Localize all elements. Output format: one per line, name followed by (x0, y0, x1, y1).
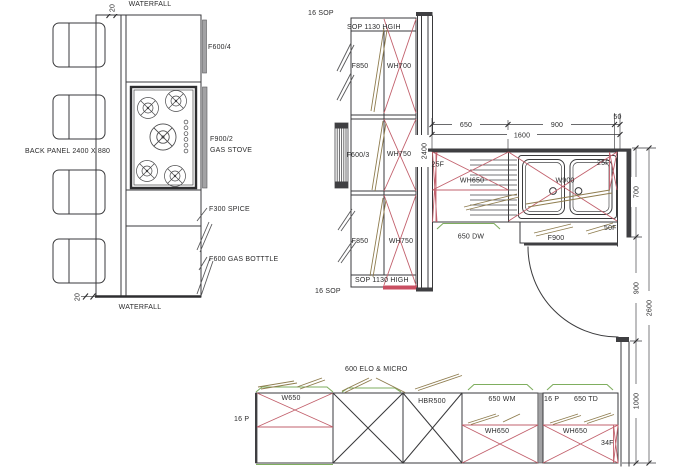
dim-1000: 1000 (634, 393, 641, 409)
label-f900: F900 (548, 235, 565, 242)
f900-door-swings (534, 223, 615, 236)
under-counter-annotations: 650 DW F900 50F (437, 222, 618, 246)
label-f850-bottom: F850 (352, 238, 369, 245)
island-outline (95, 15, 201, 297)
label-f600-gas-bottle: F600 GAS BOTTTLE (209, 256, 278, 263)
wall-right-lower (621, 342, 629, 466)
label-gas-stove: GAS STOVE (210, 147, 252, 154)
dim-50: 50 (613, 114, 621, 121)
countertop-edges (256, 385, 613, 465)
burner-icon (150, 124, 176, 150)
dim-waterfall-top: 20 (110, 4, 117, 12)
bar-stool (53, 95, 105, 139)
label-hbr500: HBR500 (418, 398, 446, 405)
burner-icon (165, 166, 186, 187)
label-wh750-bottom: WH750 (389, 238, 413, 245)
dim-waterfall-bottom: 20 (75, 293, 82, 301)
label-waterfall-top: WATERFALL (129, 1, 172, 8)
faucet-hole (575, 188, 582, 195)
dim-2400: 2400 (422, 143, 429, 159)
label-wh750-mid: WH750 (387, 151, 411, 158)
end-panel (255, 393, 257, 463)
dim-1600: 1600 (514, 133, 530, 140)
filler-strip (203, 20, 207, 73)
wall-behind-tall-units: 2400 (414, 12, 434, 292)
label-25f-right: 25F (597, 160, 610, 167)
label-50f: 50F (604, 225, 617, 232)
dim-900: 900 (551, 122, 563, 129)
gas-stove (131, 87, 196, 188)
waterfall-dim-top: 20 (104, 2, 119, 18)
kitchen-plan-page: 20 20 (0, 0, 700, 467)
label-wh650-counter: WH650 (460, 178, 484, 185)
label-16p-mid: 16 P (544, 396, 559, 403)
waterfall-dim-bottom: 20 (75, 293, 97, 301)
label-650wm: 650 WM (488, 396, 515, 403)
label-w900: W900 (555, 178, 574, 185)
label-16sop-top: 16 SOP (308, 10, 334, 17)
dim-650: 650 (460, 122, 472, 129)
tall-unit-column: 2400 16 SOP SOP 1130 HGIH F850 WH700 F60… (308, 10, 434, 295)
label-25f-left: 25F (432, 162, 445, 169)
filler-strip (203, 87, 208, 188)
bar-stool (53, 170, 105, 214)
sink-counter: 25F WH650 W900 25F (432, 152, 618, 222)
label-f600-4: F600/4 (208, 44, 231, 51)
wall-top (428, 149, 631, 152)
stove-knobs (184, 120, 188, 153)
divider-panel (538, 393, 543, 463)
wall-right-upper (627, 149, 632, 238)
burner-icon (138, 98, 159, 119)
base-cabinet-row: 600 ELO & MICRO 16 P W650 HBR500 650 WM … (234, 366, 618, 465)
label-back-panel: BACK PANEL 2400 X 880 (25, 148, 110, 155)
label-16p-left: 16 P (234, 416, 249, 423)
dishwasher-bracket (437, 224, 500, 230)
door-swing-arc (528, 247, 618, 337)
dim-900-v: 900 (634, 282, 641, 294)
dim-700: 700 (634, 186, 641, 198)
dim-2600: 2600 (647, 300, 654, 316)
cabinet-w650 (256, 393, 333, 463)
kitchen-plan-drawing: 20 20 (0, 0, 700, 467)
burner-icon (166, 91, 187, 112)
bar-stool (53, 239, 105, 283)
label-sop1130-top: SOP 1130 HGIH (347, 24, 401, 31)
label-wh650-left: WH650 (485, 428, 509, 435)
label-f850-top: F850 (352, 63, 369, 70)
label-650-dw: 650 DW (458, 234, 485, 241)
bar-stool (53, 23, 105, 67)
label-650td: 650 TD (574, 396, 598, 403)
label-16sop-bottom: 16 SOP (315, 288, 341, 295)
label-elo-micro: 600 ELO & MICRO (345, 366, 408, 373)
label-f300-spice: F300 SPICE (209, 206, 250, 213)
door-jamb (616, 337, 629, 342)
drainboard-ribs (470, 160, 517, 215)
label-f600-3: F600/3 (347, 152, 370, 159)
label-waterfall-bottom: WATERFALL (119, 304, 162, 311)
label-f900-2: F900/2 (210, 136, 233, 143)
label-wh700: WH700 (387, 63, 411, 70)
burner-icon (137, 161, 158, 182)
island-unit: 20 20 (25, 1, 278, 311)
label-34f: 34F (601, 440, 614, 447)
island-door-swings (197, 208, 213, 296)
label-sop1130-bottom: SOP 1130 HIGH (355, 277, 409, 284)
door-leaf (524, 243, 618, 246)
top-dimensions: 650 900 50 1600 (430, 113, 623, 152)
label-wh650-right: WH650 (563, 428, 587, 435)
label-w650: W650 (281, 395, 300, 402)
